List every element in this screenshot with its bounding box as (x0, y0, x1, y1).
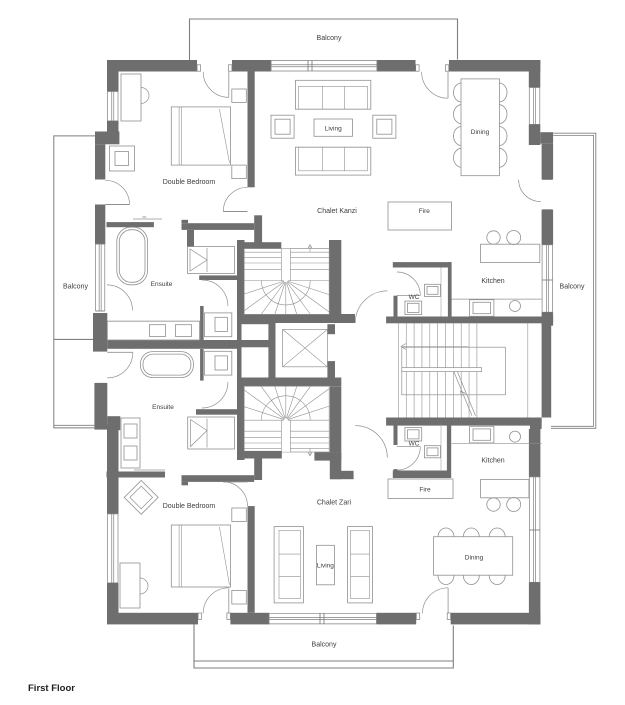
svg-text:Dining: Dining (465, 555, 484, 562)
svg-text:Fire: Fire (419, 487, 431, 494)
svg-text:Chalet Kanzi: Chalet Kanzi (317, 208, 357, 215)
svg-text:Fire: Fire (419, 208, 431, 215)
svg-text:WC: WC (409, 441, 420, 448)
svg-text:Kitchen: Kitchen (481, 278, 504, 285)
svg-text:First Floor: First Floor (28, 683, 75, 694)
svg-text:Dining: Dining (471, 129, 490, 136)
svg-text:Ensuite: Ensuite (151, 281, 173, 288)
svg-text:Balcony: Balcony (560, 284, 585, 291)
svg-text:Balcony: Balcony (312, 642, 337, 649)
svg-text:Living: Living (317, 563, 334, 570)
svg-text:Ensuite: Ensuite (152, 404, 174, 411)
svg-text:Balcony: Balcony (63, 284, 88, 291)
svg-text:Living: Living (325, 126, 342, 133)
svg-text:WC: WC (409, 294, 420, 301)
svg-text:Balcony: Balcony (317, 35, 342, 42)
svg-text:Chalet Zari: Chalet Zari (317, 500, 352, 507)
svg-text:Kitchen: Kitchen (481, 458, 504, 465)
svg-text:Double Bedroom: Double Bedroom (163, 179, 216, 186)
svg-text:Double Bedroom: Double Bedroom (163, 503, 216, 510)
